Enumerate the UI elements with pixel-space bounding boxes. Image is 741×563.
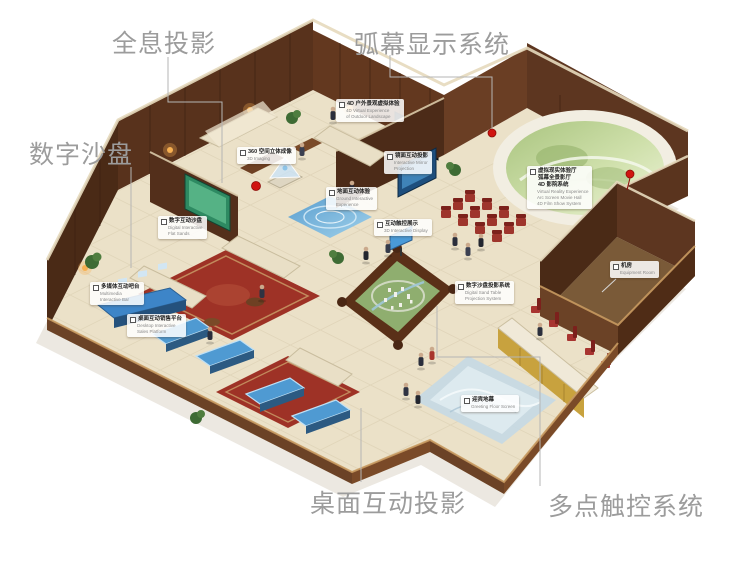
callout-zh: 360 空间立体成像 — [248, 149, 292, 156]
annotation-dot — [626, 170, 634, 178]
callout-en: Equipment Room — [620, 270, 655, 276]
callout-zh: 4D 户外景观虚拟体验 — [347, 101, 400, 108]
callout-zh: 镜面互动投影 — [395, 153, 428, 160]
checkbox-icon — [339, 102, 345, 108]
callout-zh: 数字互动沙盘 — [169, 218, 202, 225]
callout-zh: 虚拟现实体验厅 弧幕全景影厅 4D 影院系统 — [538, 168, 577, 189]
callout-zh: 迎宾地幕 — [472, 397, 494, 404]
callout-en: 4D Virtual Experience of Outdoor Landsca… — [346, 108, 400, 120]
callout-en: Virtual Reality Experience Arc Screen Mo… — [537, 189, 588, 207]
checkbox-icon — [464, 398, 470, 404]
annotation-dot — [252, 182, 261, 191]
callout-en: Interactive Mirror Projection — [394, 160, 428, 172]
callout-360-imaging: 360 空间立体成像 3D Imaging — [237, 147, 296, 164]
callout-4d-outdoor-landscape: 4D 户外景观虚拟体验 4D Virtual Experience of Out… — [336, 99, 404, 122]
callout-ground-interactive: 地面互动体验 Ground Interactive Experience — [326, 187, 377, 210]
callout-zh: 机房 — [621, 263, 632, 270]
callout-en: Multimedia Interactive Bar — [100, 291, 140, 303]
checkbox-icon — [240, 150, 246, 156]
callout-en: Desktop Interactive Sales Platform — [137, 323, 182, 335]
callout-en: 3D Imaging — [247, 156, 292, 162]
callout-greeting-floor-screen: 迎宾地幕 Greeting Floor Screen — [461, 395, 519, 412]
checkbox-icon — [93, 285, 99, 291]
callout-zh: 互动触控展示 — [385, 221, 418, 228]
callout-en: Greeting Floor Screen — [471, 404, 515, 410]
checkbox-icon — [458, 284, 464, 290]
checkbox-icon — [329, 190, 335, 196]
checkbox-icon — [387, 154, 393, 160]
label-holographic-projection: 全息投影 — [112, 24, 216, 60]
annotation-dot — [488, 129, 496, 137]
callout-mirror-projection: 镜面互动投影 Interactive Mirror Projection — [384, 151, 432, 174]
annotated-showroom-render: 全息投影 弧幕显示系统 数字沙盘 桌面互动投影 多点触控系统 4D 户外景观虚拟… — [0, 0, 741, 563]
checkbox-icon — [161, 219, 167, 225]
callout-zh: 多媒体互动吧台 — [101, 284, 140, 291]
callout-vr-theater: 虚拟现实体验厅 弧幕全景影厅 4D 影院系统 Virtual Reality E… — [527, 166, 592, 209]
callout-equipment-room: 机房 Equipment Room — [610, 261, 659, 278]
callout-zh: 地面互动体验 — [337, 189, 370, 196]
callout-en: Ground Interactive Experience — [336, 196, 373, 208]
callout-zh: 数字沙盘投影系统 — [466, 283, 510, 290]
label-multi-touch-system: 多点触控系统 — [548, 487, 704, 523]
callout-multimedia-bar: 多媒体互动吧台 Multimedia Interactive Bar — [90, 282, 144, 305]
callout-interactive-display: 互动触控展示 3D Interactive Display — [374, 219, 432, 236]
label-digital-sand-table: 数字沙盘 — [29, 135, 133, 171]
label-curved-screen-display-system: 弧幕显示系统 — [354, 25, 510, 61]
callout-sand-table-projection: 数字沙盘投影系统 Digital Sand Table Projection S… — [455, 281, 514, 304]
label-desktop-interactive-projection: 桌面互动投影 — [310, 484, 466, 520]
callout-en: Digital Sand Table Projection System — [465, 290, 510, 302]
callout-en: 3D Interactive Display — [384, 228, 428, 234]
checkbox-icon — [613, 264, 619, 270]
callout-digital-interactive-table: 数字互动沙盘 Digital Interactive Flat Sands — [158, 216, 207, 239]
callout-en: Digital Interactive Flat Sands — [168, 225, 203, 237]
checkbox-icon — [530, 169, 536, 175]
checkbox-icon — [377, 222, 383, 228]
callout-zh: 桌面互动销售平台 — [138, 316, 182, 323]
checkbox-icon — [130, 317, 136, 323]
callout-desktop-sales-platform: 桌面互动销售平台 Desktop Interactive Sales Platf… — [127, 314, 186, 337]
